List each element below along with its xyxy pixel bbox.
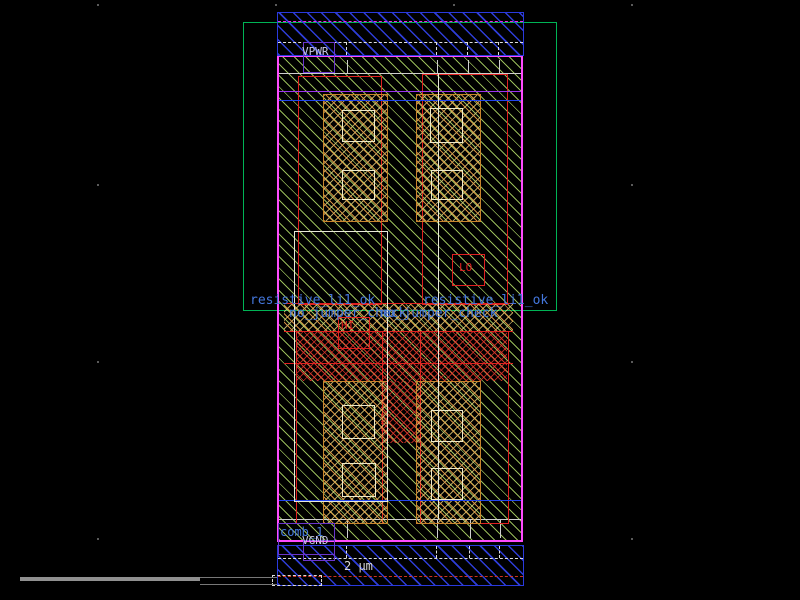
- purple-route-line: [279, 91, 521, 92]
- scrollbar-track-top[interactable]: [200, 577, 277, 578]
- contact-square: [431, 170, 463, 200]
- grid-dot: [97, 538, 99, 540]
- li-divider: [468, 60, 469, 73]
- rail-segment-divider: [346, 42, 347, 55]
- rail-segment-divider: [467, 42, 468, 55]
- hi-terminal-label[interactable]: HI: [341, 320, 354, 331]
- contact-square: [342, 110, 375, 142]
- contact-square: [431, 410, 463, 442]
- rail-segment-divider: [498, 42, 499, 55]
- vgnd-label[interactable]: VGND: [302, 535, 329, 546]
- vpwr-label[interactable]: VPWR: [302, 46, 329, 57]
- grid-dot: [97, 361, 99, 363]
- grid-dot: [97, 184, 99, 186]
- metal-pin-stripe: [278, 21, 523, 22]
- lo-terminal-label[interactable]: LO: [459, 262, 472, 273]
- rail-segment-divider: [499, 546, 500, 558]
- contact-square: [430, 108, 463, 143]
- layout-canvas[interactable]: VPWR resistive_li1_ok resistive_li1_ok n…: [0, 0, 800, 600]
- grid-dot: [631, 361, 633, 363]
- scale-marker-box: [272, 575, 322, 586]
- grid-dot: [631, 184, 633, 186]
- selection-rect: [294, 231, 388, 502]
- rail-segment-divider: [346, 546, 347, 558]
- grid-dot: [275, 4, 277, 6]
- scrollbar-track-bottom[interactable]: [200, 584, 277, 585]
- diffusion-lower-right: [416, 381, 481, 524]
- grid-dot: [97, 4, 99, 6]
- blue-route-line-top: [279, 100, 521, 101]
- contact-square: [342, 170, 375, 200]
- grid-dot: [631, 538, 633, 540]
- li-divider: [437, 60, 438, 73]
- li-divider: [347, 60, 348, 73]
- rail-segment-divider: [436, 546, 437, 558]
- scale-label: 2 µm: [344, 560, 373, 572]
- no-jumper-label-right[interactable]: no_jumper_check: [380, 307, 497, 320]
- grid-dot: [453, 4, 455, 6]
- li-divider: [499, 60, 500, 73]
- grid-dot: [631, 4, 633, 6]
- contact-square: [431, 468, 463, 500]
- rail-segment-divider: [436, 42, 437, 55]
- rail-segment-divider: [469, 546, 470, 558]
- horizontal-scrollbar-thumb[interactable]: [20, 577, 200, 581]
